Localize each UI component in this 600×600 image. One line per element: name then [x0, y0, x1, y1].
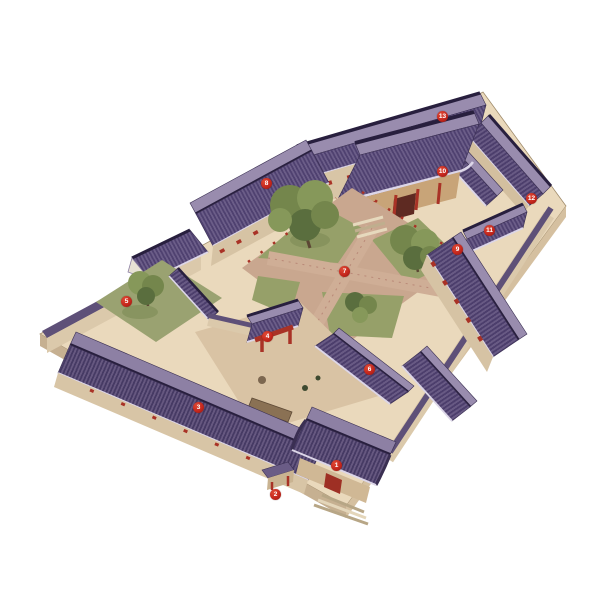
siheyuan-drawing — [0, 0, 600, 600]
siheyuan-illustration: 12345678910111213 — [0, 0, 600, 600]
